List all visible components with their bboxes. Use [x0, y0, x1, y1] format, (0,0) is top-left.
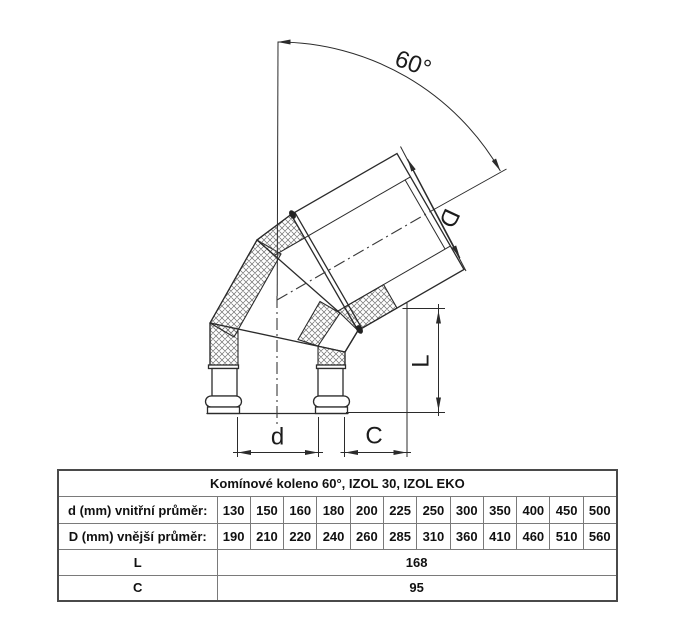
value-cell: 560	[583, 524, 617, 550]
value-cell: 460	[517, 524, 550, 550]
length-row: L 168	[58, 550, 617, 576]
row-label-d: d (mm) vnitřní průměr:	[58, 497, 217, 524]
angle-label: 60°	[391, 45, 434, 83]
offset-row: C 95	[58, 576, 617, 601]
value-cell: 410	[483, 524, 516, 550]
value-cell: 150	[250, 497, 283, 524]
outer-diameter-row: D (mm) vnější průměr: 190 210 220 240 26…	[58, 524, 617, 550]
spec-table: Komínové koleno 60°, IZOL 30, IZOL EKO d…	[57, 469, 618, 602]
offset-label: C	[365, 423, 382, 450]
table-title: Komínové koleno 60°, IZOL 30, IZOL EKO	[58, 470, 617, 497]
table-title-row: Komínové koleno 60°, IZOL 30, IZOL EKO	[58, 470, 617, 497]
value-cell: 240	[317, 524, 350, 550]
page: 60° D L d C	[0, 0, 673, 626]
value-cell: 450	[550, 497, 583, 524]
spigot-bead-right	[314, 396, 350, 407]
inner-diameter-label: d	[271, 424, 284, 451]
value-cell: 500	[583, 497, 617, 524]
value-cell: 220	[284, 524, 317, 550]
offset-value: 95	[217, 576, 617, 601]
elbow-technical-drawing: 60° D L d C	[0, 0, 673, 470]
value-cell: 285	[383, 524, 416, 550]
value-cell: 200	[350, 497, 383, 524]
length-label: L	[408, 354, 435, 367]
value-cell: 400	[517, 497, 550, 524]
row-label-D: D (mm) vnější průměr:	[58, 524, 217, 550]
row-label-C: C	[58, 576, 217, 601]
value-cell: 510	[550, 524, 583, 550]
spigot-bead-left	[206, 396, 242, 407]
offset-dimension: C	[341, 417, 412, 457]
row-label-L: L	[58, 550, 217, 576]
value-cell: 190	[217, 524, 250, 550]
value-cell: 180	[317, 497, 350, 524]
value-cell: 300	[450, 497, 483, 524]
length-value: 168	[217, 550, 617, 576]
angle-dimension: 60°	[278, 42, 501, 171]
inner-diameter-dimension: d	[233, 417, 323, 457]
value-cell: 160	[284, 497, 317, 524]
value-cell: 130	[217, 497, 250, 524]
value-cell: 250	[417, 497, 450, 524]
value-cell: 350	[483, 497, 516, 524]
value-cell: 225	[383, 497, 416, 524]
value-cell: 310	[417, 524, 450, 550]
value-cell: 210	[250, 524, 283, 550]
value-cell: 260	[350, 524, 383, 550]
inner-diameter-row: d (mm) vnitřní průměr: 130 150 160 180 2…	[58, 497, 617, 524]
value-cell: 360	[450, 524, 483, 550]
